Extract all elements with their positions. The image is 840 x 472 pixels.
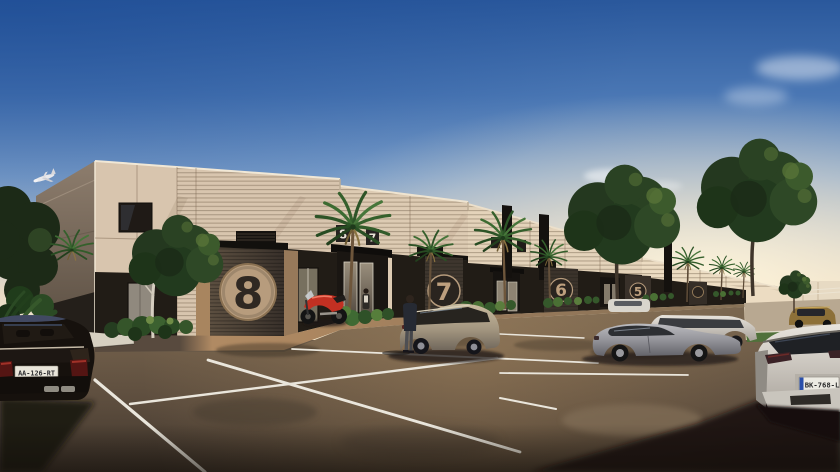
unit-5-door-number: 5 [634,285,642,299]
sedan-taillight [594,336,599,340]
scene-svg: 8 8 7 7 [0,0,840,472]
exhaust-tip [61,386,75,392]
rendering-canvas: 8 8 7 7 [0,0,840,472]
unit-4-garage-door [689,281,707,305]
license-plate-left-text: AA-126-RT [18,370,55,378]
license-plate-right-text: BK-768-L [805,381,840,390]
plate-eu-strip [800,378,804,392]
doorway-person [363,288,370,309]
bottom-vignette [0,424,840,472]
exhaust-tip [44,386,59,392]
unit-7-door-number: 7 [436,278,453,306]
unit-8-door-number: 8 [233,269,264,320]
facade-window [119,203,152,232]
